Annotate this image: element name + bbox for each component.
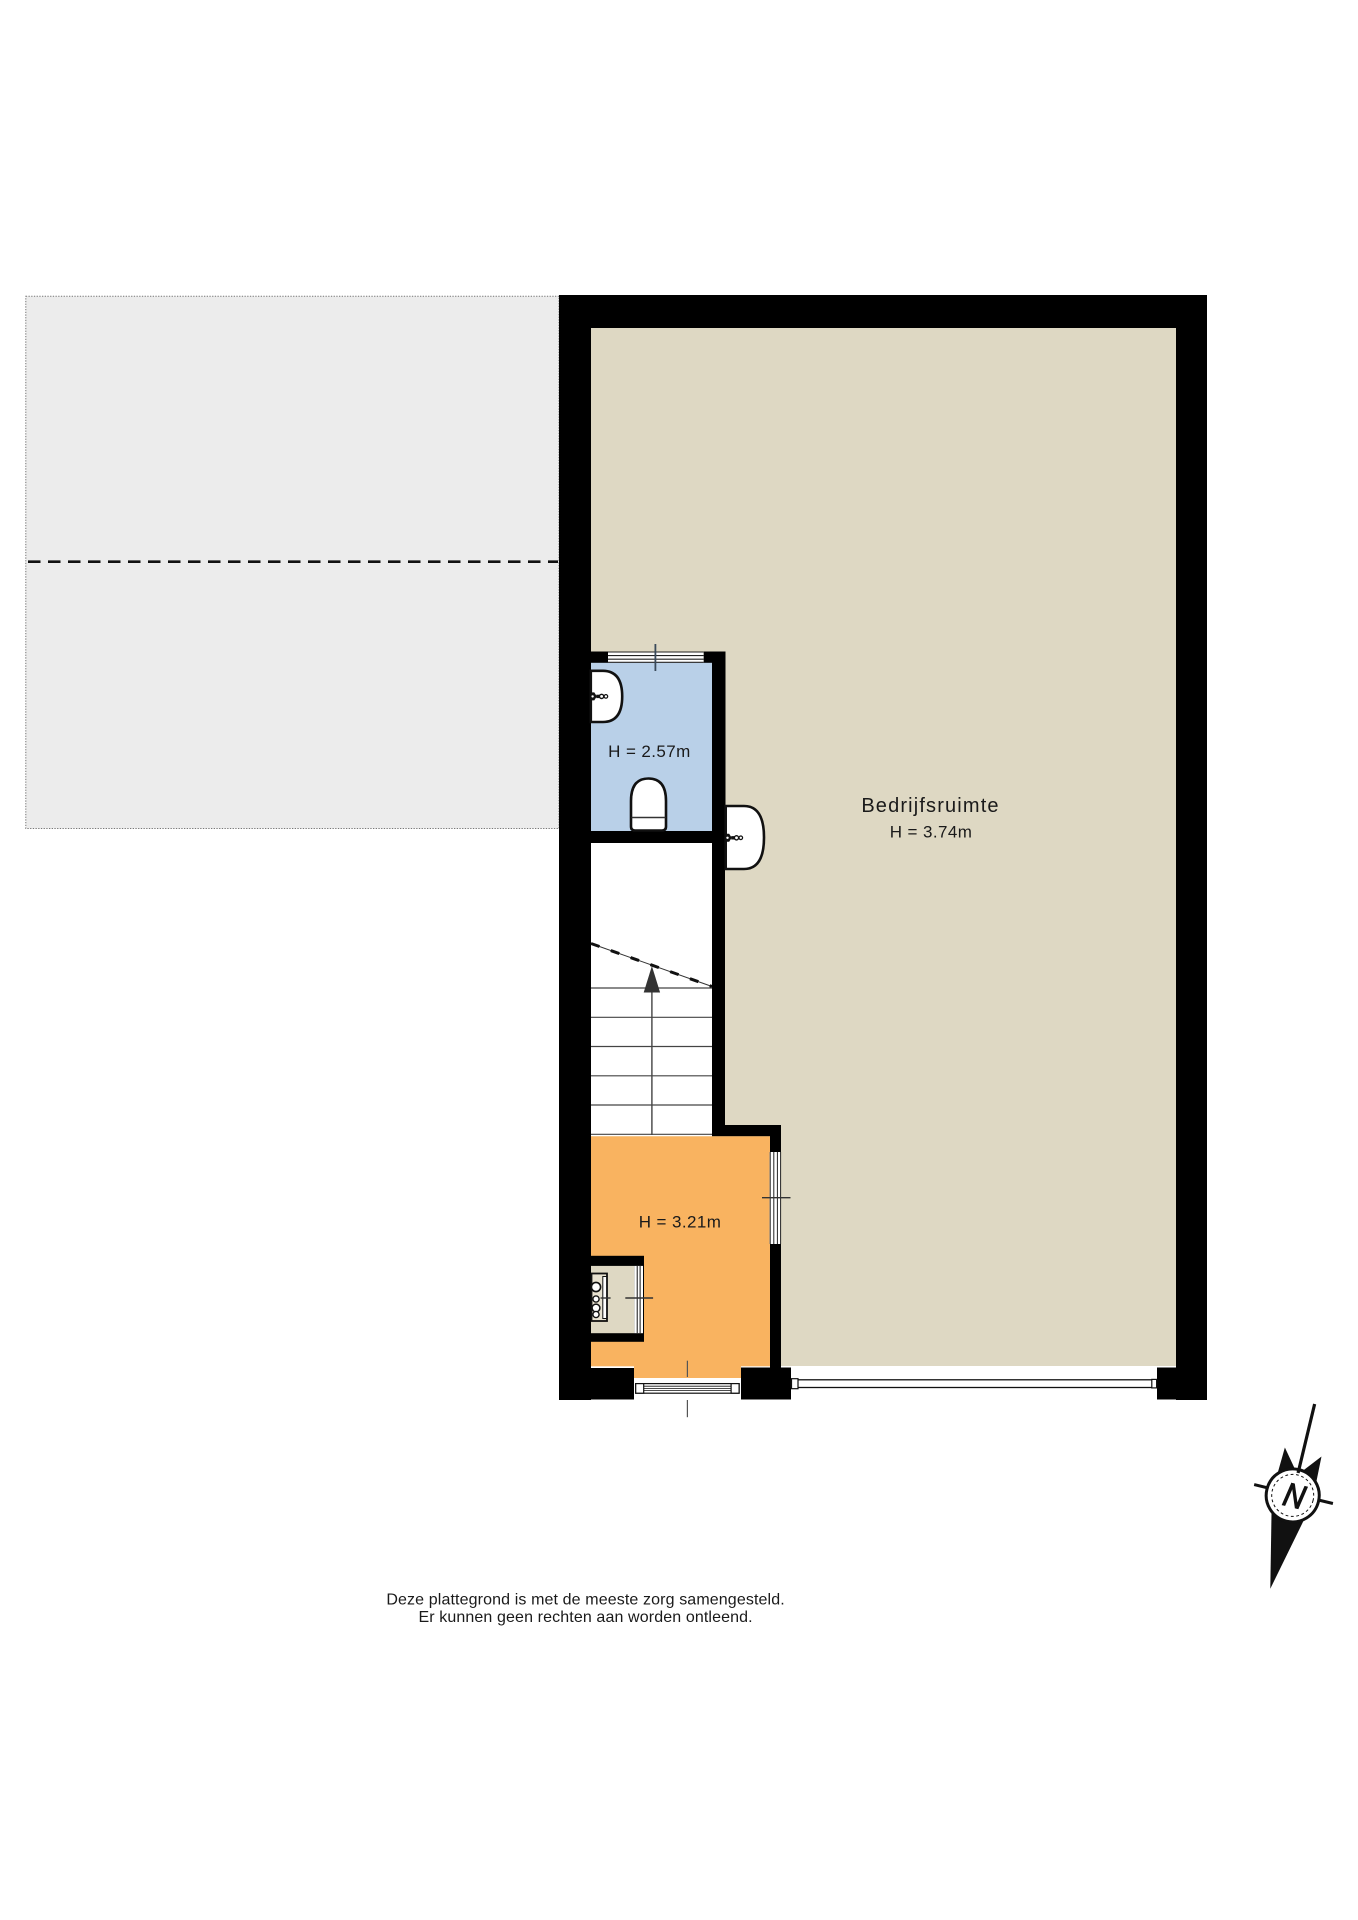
svg-text:H = 3.74m: H = 3.74m — [890, 823, 973, 842]
svg-text:H = 2.57m: H = 2.57m — [608, 742, 691, 761]
svg-text:H = 3.21m: H = 3.21m — [639, 1213, 722, 1232]
svg-text:Deze plattegrond is met de mee: Deze plattegrond is met de meeste zorg s… — [386, 1591, 784, 1608]
svg-text:Bedrijfsruimte: Bedrijfsruimte — [861, 795, 999, 817]
svg-text:Er kunnen geen rechten aan wor: Er kunnen geen rechten aan worden ontlee… — [418, 1609, 752, 1626]
